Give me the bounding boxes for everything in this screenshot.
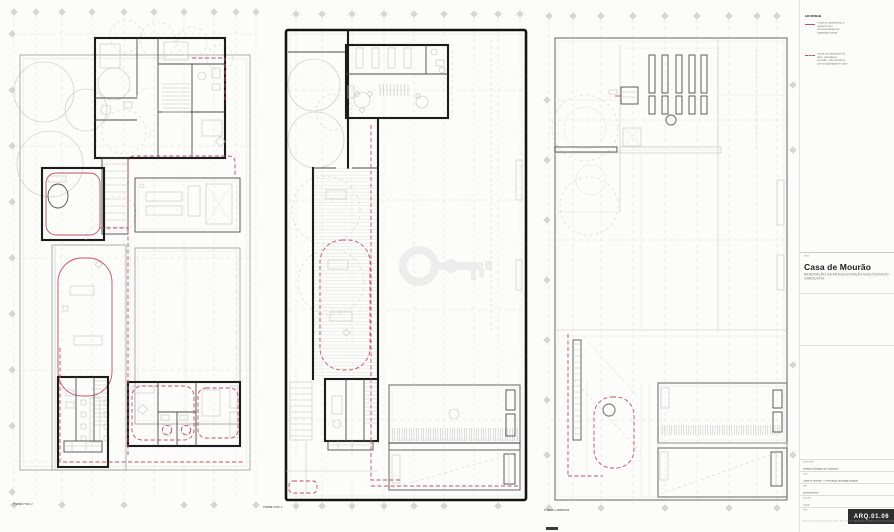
red-dashed-line-swatch bbox=[805, 55, 815, 56]
plan-panel-cobertura bbox=[541, 0, 796, 532]
field-label: escalas bbox=[803, 497, 871, 500]
field-row: requerente Estação Biológica do Garducho bbox=[800, 459, 894, 471]
entry-court bbox=[288, 30, 348, 168]
project-title: Casa de Mourão bbox=[804, 262, 891, 272]
fine-print: este desenho é propriedade do autor e nã… bbox=[802, 520, 894, 522]
field-label: obra bbox=[803, 473, 871, 476]
halls-block bbox=[389, 385, 520, 490]
sheet-code: ARQ.01.06 bbox=[854, 514, 889, 520]
courtyard-marks bbox=[491, 40, 522, 330]
legend-item-text: Peças de acabamento a existente sem corr… bbox=[817, 22, 849, 35]
floor-plan-piso-0-svg bbox=[6, 0, 264, 532]
field-row: obra Casa de Mourão — renovação da antig… bbox=[800, 471, 894, 483]
house-block bbox=[95, 38, 225, 158]
rooms-block bbox=[346, 45, 452, 118]
legend-item: Peças de acabamento a existente sem corr… bbox=[805, 22, 892, 52]
plan-label-piso-1: Planta Piso 1 bbox=[263, 506, 282, 509]
plan-panel-piso-1 bbox=[276, 0, 534, 532]
plan-panel-piso-0 bbox=[6, 0, 264, 532]
title-block: LEGENDA Peças de acabamento a existente … bbox=[799, 0, 894, 532]
project-label: obra bbox=[804, 255, 839, 257]
bottom-rooms-block bbox=[286, 379, 378, 494]
divider bbox=[800, 293, 894, 294]
halls-block bbox=[641, 383, 787, 497]
legend: LEGENDA Peças de acabamento a existente … bbox=[805, 15, 892, 83]
scale-bar bbox=[546, 527, 558, 530]
field-label: fase bbox=[803, 485, 871, 488]
legend-item: Peças com alterações de vãos, marcadas a… bbox=[805, 53, 892, 83]
title-block-fields: requerente Estação Biológica do Garducho… bbox=[800, 459, 894, 526]
bottom-left-block bbox=[58, 377, 108, 467]
plan-label-cobertura: Planta Cobertura bbox=[544, 509, 569, 512]
large-hall bbox=[130, 245, 240, 424]
floor-plan-piso-1-svg bbox=[276, 0, 534, 532]
roof-diagonals bbox=[574, 336, 641, 452]
ladder-stair bbox=[573, 340, 581, 440]
drawing-sheet: Planta Piso 0 Planta Piso 1 Planta Cober… bbox=[0, 0, 894, 532]
roof-plan-svg bbox=[541, 0, 796, 532]
field-value: Casa de Mourão — renovação da antiga est… bbox=[803, 480, 878, 483]
grid-markers bbox=[8, 8, 259, 508]
equipment-shed bbox=[135, 178, 240, 232]
deck-terrace bbox=[313, 118, 378, 379]
field-value: 1:100 bbox=[803, 504, 878, 507]
deck-terrace bbox=[52, 245, 126, 470]
plan-label-piso-0: Planta Piso 0 bbox=[13, 503, 32, 506]
field-row: fase licenciamento bbox=[800, 483, 894, 495]
field-label: requerente bbox=[803, 461, 871, 464]
annex-room bbox=[42, 168, 128, 240]
legalization-overlay-red bbox=[60, 58, 244, 462]
sheet-number-row: data ARQ.01.06 bbox=[800, 507, 894, 526]
field-value: licenciamento bbox=[803, 492, 878, 495]
legend-title: LEGENDA bbox=[805, 15, 853, 18]
project-identification: obra Casa de Mourão Renovação da antiga … bbox=[800, 252, 894, 287]
field-row: escalas 1:100 bbox=[800, 495, 894, 507]
project-subtitle: Renovação da antiga Estação Biológica do… bbox=[804, 273, 891, 281]
red-line-swatch bbox=[805, 24, 815, 25]
tree-circles bbox=[552, 95, 618, 235]
left-strip-stair bbox=[290, 382, 312, 440]
divider bbox=[800, 345, 894, 346]
court-left bbox=[555, 45, 620, 212]
field-value: Estação Biológica do Garducho bbox=[803, 468, 878, 471]
legend-item-text: Peças com alterações de vãos, marcadas a… bbox=[817, 53, 849, 66]
roof-planes bbox=[555, 38, 787, 476]
